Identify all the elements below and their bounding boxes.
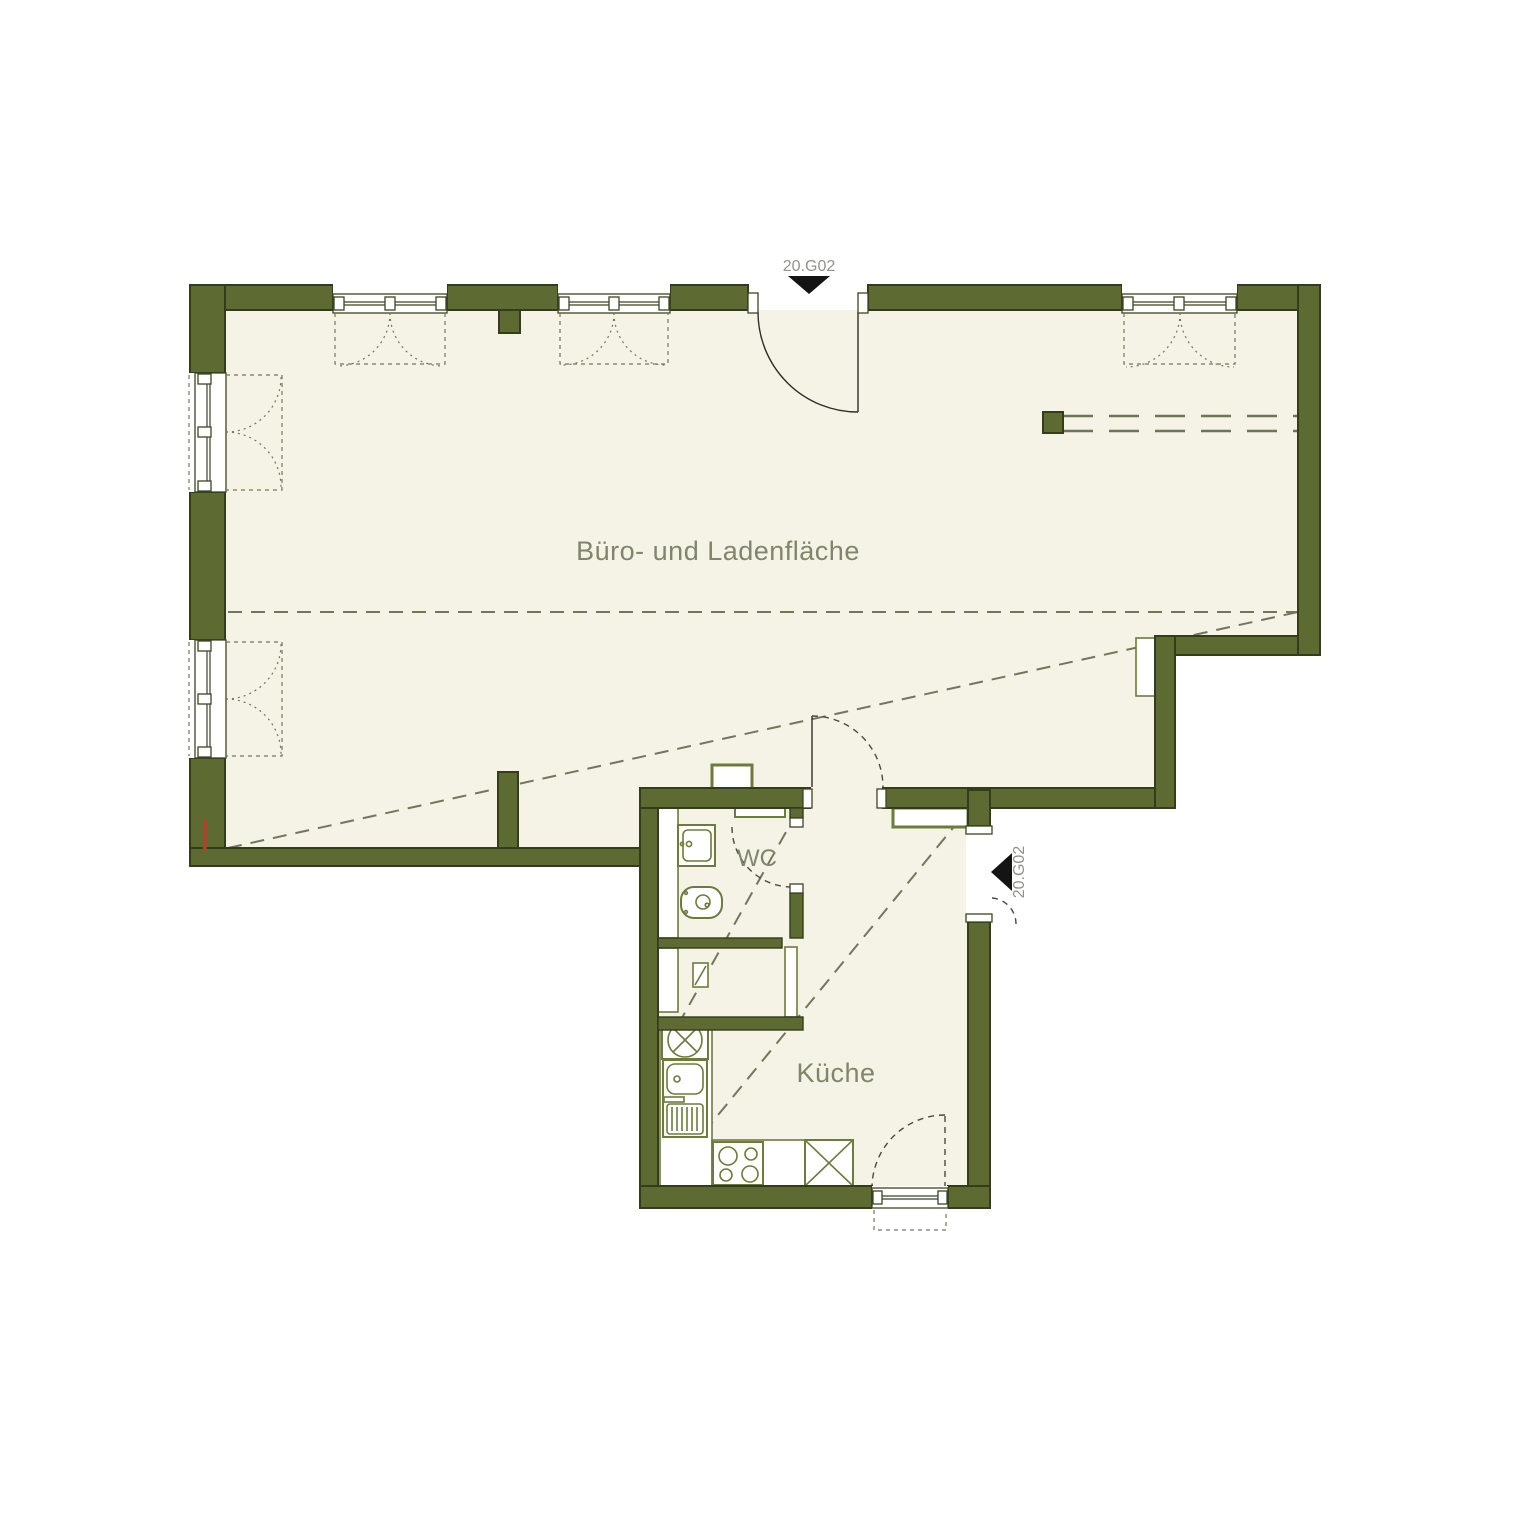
- kitchen-sink: [663, 1060, 707, 1137]
- dishwasher-space: [805, 1140, 853, 1186]
- section-marker-red: [203, 820, 207, 852]
- label-entrance-top: 20.G02: [783, 258, 836, 275]
- stove: [713, 1142, 763, 1185]
- label-main-room: Büro- und Ladenfläche: [576, 536, 860, 566]
- niche-door: [785, 947, 797, 1017]
- floor-plan-canvas: Büro- und Ladenfläche WC Küche 20.G02 20…: [0, 0, 1536, 1536]
- label-kitchen: Küche: [796, 1058, 875, 1088]
- kitchen-doorway-floor: [810, 788, 883, 808]
- niche-utility-box: [693, 963, 708, 987]
- wc-radiator: [735, 808, 785, 817]
- side-entrance-arc: [992, 898, 1016, 924]
- entrance-arrow-side: [991, 853, 1012, 891]
- partition-stub: [498, 772, 518, 848]
- wc-sink: [678, 825, 715, 866]
- wc-shaft-lower: [658, 948, 678, 1012]
- duct-box: [712, 765, 752, 789]
- main-room-floor: [225, 310, 1298, 848]
- step-shaft: [1136, 638, 1157, 696]
- label-wc: WC: [737, 845, 777, 872]
- wc-shaft-upper: [658, 808, 678, 938]
- entrance-jamb-right: [858, 293, 868, 313]
- top-wall-stub: [499, 310, 520, 333]
- toilet: [681, 887, 722, 918]
- side-entrance-opening: [966, 826, 992, 922]
- entrance-arrow-top: [788, 276, 830, 294]
- window-kitchen: [872, 1186, 948, 1230]
- entrance-jamb-left: [748, 293, 758, 313]
- floor-areas: [225, 310, 1298, 1186]
- column: [1043, 412, 1063, 433]
- floor-plan-svg: Büro- und Ladenfläche WC Küche 20.G02 20…: [0, 0, 1536, 1536]
- label-entrance-side: 20.G02: [1011, 846, 1028, 899]
- kitchen-wall-niche: [893, 808, 968, 827]
